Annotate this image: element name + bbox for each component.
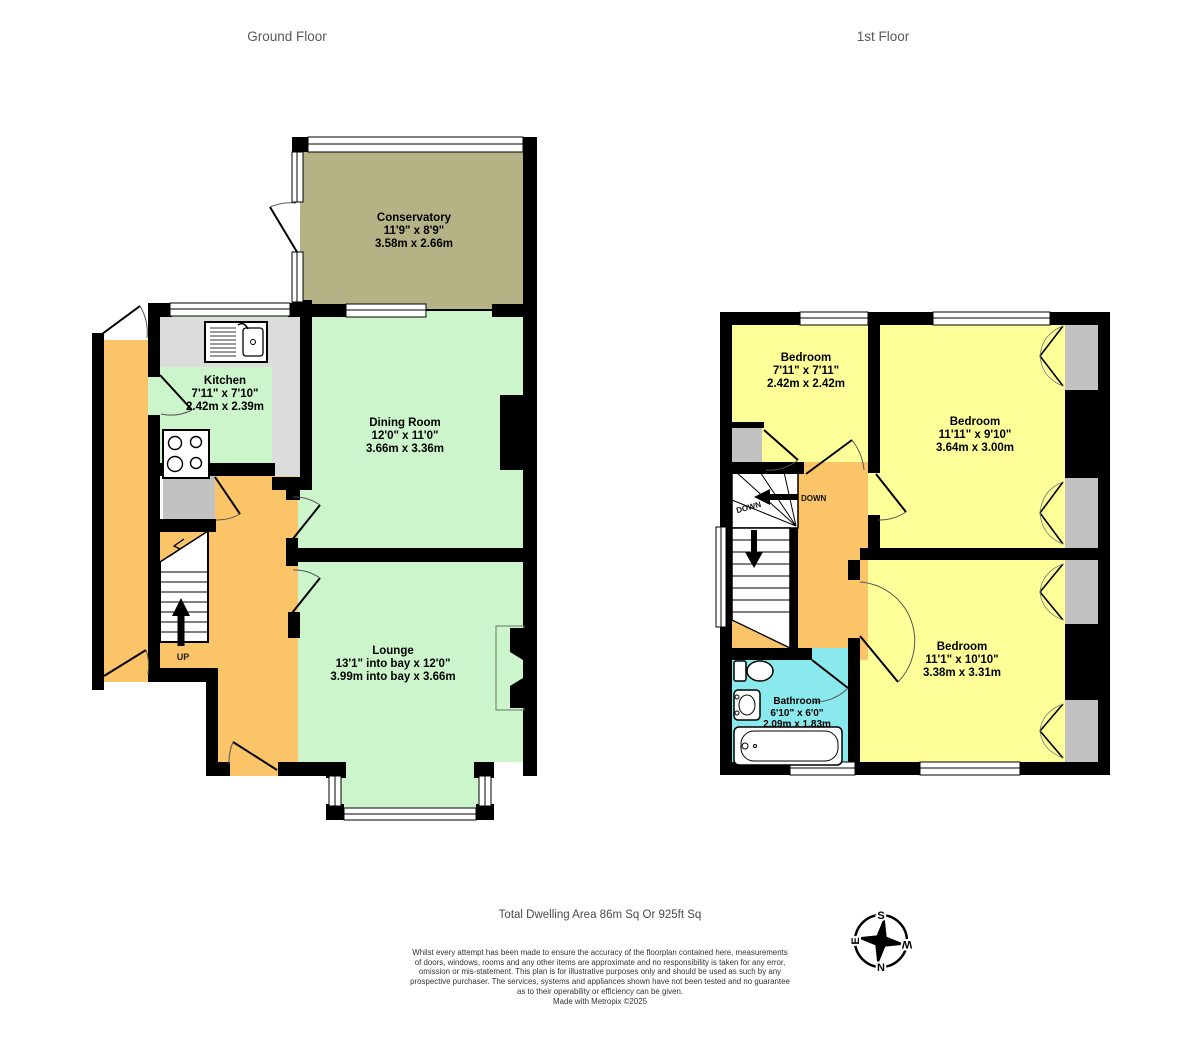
compass-rose-icon: S N E W <box>845 905 917 977</box>
wardrobe <box>1065 700 1098 762</box>
svg-text:S: S <box>877 910 884 922</box>
cupboard <box>732 428 762 462</box>
total-area-text: Total Dwelling Area 86m Sq Or 925ft Sq <box>400 909 800 921</box>
wardrobe <box>1065 560 1098 624</box>
svg-text:W: W <box>901 938 912 950</box>
room-label-lounge: Lounge 13'1" into bay x 12'0" 3.99m into… <box>293 645 493 684</box>
ground-floor-heading: Ground Floor <box>207 29 367 44</box>
first-floor-heading: 1st Floor <box>803 29 963 44</box>
hallway <box>208 476 298 762</box>
room-label-conservatory: Conservatory 11'9" x 8'9" 3.58m x 2.66m <box>324 212 504 251</box>
staircase-down <box>732 470 798 648</box>
room-label-bathroom: Bathroom 6'10" x 6'0" 2.09m x 1.83m <box>737 696 857 731</box>
wardrobe <box>1065 478 1098 548</box>
toilet-icon <box>734 661 773 681</box>
disclaimer-text: Whilst every attempt has been made to en… <box>340 948 860 1006</box>
stairs-down-label: DOWN <box>801 494 826 503</box>
room-label-bedroom-front: Bedroom 11'11" x 9'10" 3.64m x 3.00m <box>885 416 1065 455</box>
bathtub-icon <box>734 727 842 765</box>
room-label-dining: Dining Room 12'0" x 11'0" 3.66m x 3.36m <box>315 417 495 456</box>
room-label-bedroom-rear: Bedroom 11'1" x 10'10" 3.38m x 3.31m <box>872 641 1052 680</box>
side-passage <box>104 340 148 682</box>
larder-cupboard <box>163 473 215 521</box>
room-label-kitchen: Kitchen 7'11" x 7'10" 2.42m x 2.39m <box>155 375 295 414</box>
kitchen-sink-icon <box>205 322 267 362</box>
stairs-up-label: UP <box>168 652 198 662</box>
room-label-bedroom-small: Bedroom 7'11" x 7'11" 2.42m x 2.42m <box>736 352 876 391</box>
svg-text:N: N <box>877 962 885 974</box>
floorplan-canvas: Ground Floor 1st Floor <box>0 0 1200 1058</box>
svg-text:E: E <box>850 937 862 944</box>
stove-icon <box>163 430 209 478</box>
staircase-up <box>160 531 208 646</box>
wardrobe <box>1065 322 1098 390</box>
